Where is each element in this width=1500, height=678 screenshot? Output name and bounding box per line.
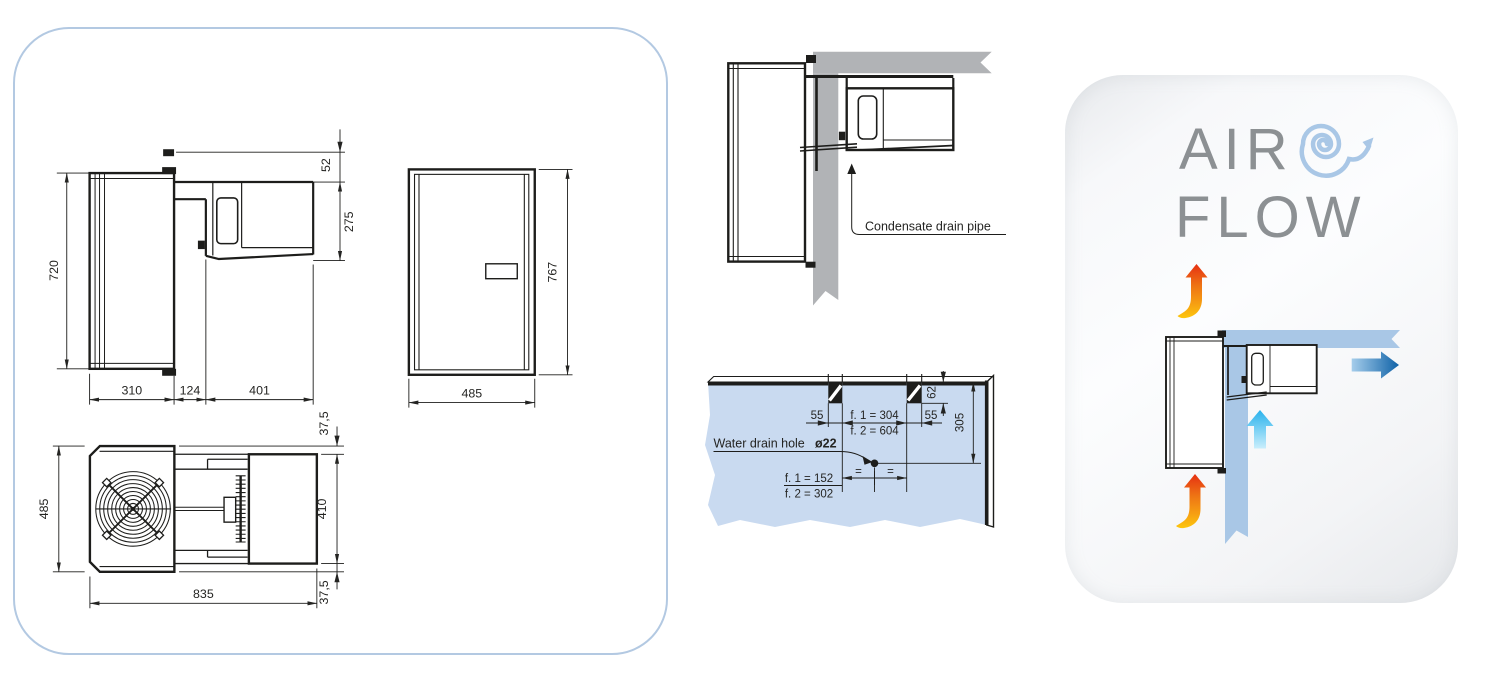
mount-hook	[806, 55, 816, 63]
compressor-fins	[236, 476, 246, 542]
wall-mount-section-drawing: Condensate drain pipe	[728, 52, 1006, 306]
slot-depth-62-label: 62	[927, 386, 939, 399]
dim-top-unit-width: 410	[315, 498, 329, 519]
equal-mark-left: =	[855, 466, 862, 478]
slot-span-f2-label: f. 2 = 604	[850, 426, 899, 438]
latch	[839, 132, 845, 141]
side-view-drawing: 720 52 275 310 124	[47, 129, 356, 404]
hole-offset-f2-label: f. 2 = 302	[785, 489, 833, 501]
leader-arrow-icon	[847, 164, 856, 175]
airflow-panel: AIR FLOW	[1065, 75, 1458, 603]
wall-cutout-drawing: 55 f. 1 = 304 f. 2 = 604 55 62 305 Water…	[705, 371, 994, 527]
dim-side-unit-height: 275	[342, 211, 356, 232]
slot-span-f1-label: f. 1 = 304	[850, 410, 899, 422]
dim-top-length: 835	[193, 587, 214, 601]
dimension-drawings-svg: 720 52 275 310 124	[15, 29, 666, 653]
latch	[198, 241, 205, 249]
front-view-drawing: 485 767	[409, 169, 573, 407]
cold-room-wall	[705, 382, 987, 527]
mount-hook	[163, 149, 174, 156]
hole-drop-305-label: 305	[955, 413, 967, 432]
dimensions-panel: 720 52 275 310 124	[13, 27, 668, 655]
hole-diameter-label: ø22	[815, 437, 837, 451]
swirl-icon	[1265, 100, 1390, 190]
cold-air-out-arrow-icon	[1352, 352, 1399, 379]
condensate-drain-pipe-label: Condensate drain pipe	[865, 220, 991, 234]
dim-front-width: 485	[462, 387, 483, 401]
water-drain-hole	[871, 460, 879, 468]
top-view-drawing: 485 835 410 37,5 37,5	[37, 411, 344, 608]
dim-top-margin-bottom: 37,5	[317, 580, 331, 604]
airflow-title-flow: FLOW	[1175, 189, 1367, 247]
slot-55-right-label: 55	[925, 410, 938, 422]
dim-side-inside-depth: 310	[121, 384, 142, 398]
dim-side-hook-offset: 52	[319, 158, 333, 172]
installation-drawings-svg: Condensate drain pipe	[680, 30, 1060, 600]
cool-air-up-arrow-icon	[1247, 410, 1274, 449]
dim-top-width: 485	[37, 498, 51, 519]
dim-side-wall-thickness: 124	[180, 384, 201, 398]
dim-top-margin-top: 37,5	[317, 411, 331, 435]
hole-offset-f1-label: f. 1 = 152	[785, 473, 833, 485]
ceiling-wall	[813, 52, 992, 74]
dim-side-outside-depth: 401	[249, 384, 270, 398]
warm-air-up-arrow-icon	[1176, 474, 1206, 528]
dim-front-height: 767	[546, 262, 560, 283]
dim-side-height: 720	[47, 260, 61, 281]
technical-sheet: 720 52 275 310 124	[0, 0, 1500, 678]
equal-mark-right: =	[887, 466, 894, 478]
slot-55-left-label: 55	[811, 410, 824, 422]
warm-air-up-arrow-icon	[1178, 264, 1208, 318]
water-drain-hole-label: Water drain hole	[714, 437, 805, 451]
